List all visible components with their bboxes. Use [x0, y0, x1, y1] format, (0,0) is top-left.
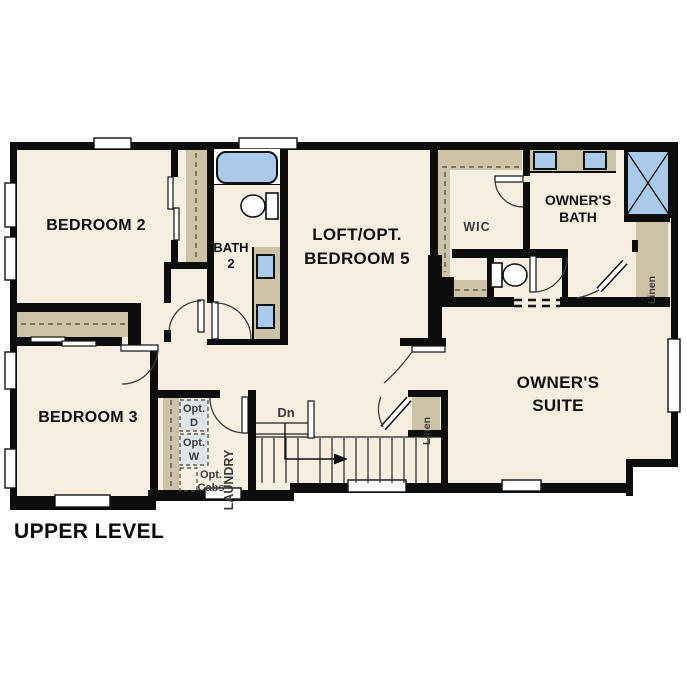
window [5, 352, 16, 389]
stairs-down-label: Dn [277, 405, 294, 420]
opt-washer-label-line2: W [189, 451, 200, 463]
window [55, 495, 110, 507]
floorplan-canvas: BEDROOM 2 BEDROOM 3 BATH 2 LOFT/OPT. BED… [0, 0, 687, 687]
window [239, 138, 297, 149]
door-leaf [495, 176, 523, 182]
plan-title: UPPER LEVEL [14, 520, 164, 543]
window [502, 480, 541, 491]
window [668, 339, 680, 412]
door-leaf [62, 341, 96, 346]
window [94, 138, 131, 149]
door-leaf [121, 345, 158, 351]
owners-suite-label-line1: OWNER'S [517, 373, 600, 392]
door-leaf [174, 208, 179, 240]
bedroom2-label: BEDROOM 2 [46, 217, 146, 234]
opt-cabs-label-line2: Cabs [198, 482, 225, 494]
owners-suite-label-line2: SUITE [532, 396, 584, 415]
door-leaf [198, 300, 204, 332]
bath2-label-line1: BATH [213, 240, 248, 255]
bathtub [214, 149, 280, 184]
door-leaf [31, 337, 65, 342]
toilet-bath2 [241, 193, 278, 219]
toilet-owners [491, 263, 527, 287]
window [348, 480, 406, 492]
door-leaf [242, 397, 248, 433]
floorplan-page: BEDROOM 2 BEDROOM 3 BATH 2 LOFT/OPT. BED… [0, 0, 687, 687]
door-leaf [212, 302, 218, 339]
laundry-label: LAUNDRY [222, 449, 236, 510]
owners-bath-label-line2: BATH [559, 209, 597, 225]
shower [626, 150, 670, 216]
linen-bath-label: Linen [646, 276, 658, 304]
bath2-label-line2: 2 [227, 256, 234, 271]
opt-cabs-label-line1: Opt. [200, 469, 222, 481]
door-leaf [530, 256, 536, 292]
window [5, 237, 16, 280]
opt-dryer-label-line1: Opt. [183, 403, 205, 415]
door-leaf [412, 346, 445, 352]
wic-shelf-bottom [452, 280, 487, 298]
window [5, 183, 16, 227]
window [5, 449, 16, 488]
stair-rail [308, 401, 314, 438]
opt-dryer-label-line2: D [190, 417, 198, 429]
loft-label-line1: LOFT/OPT. [312, 225, 402, 244]
door-leaf [168, 177, 173, 209]
opt-washer-label-line1: Opt. [183, 437, 205, 449]
owners-bath-label-line1: OWNER'S [545, 192, 611, 208]
wic-label: WIC [463, 220, 490, 234]
linen-hall-label: Linen [421, 417, 433, 445]
bedroom3-label: BEDROOM 3 [38, 409, 138, 426]
loft-label-line2: BEDROOM 5 [304, 249, 410, 268]
